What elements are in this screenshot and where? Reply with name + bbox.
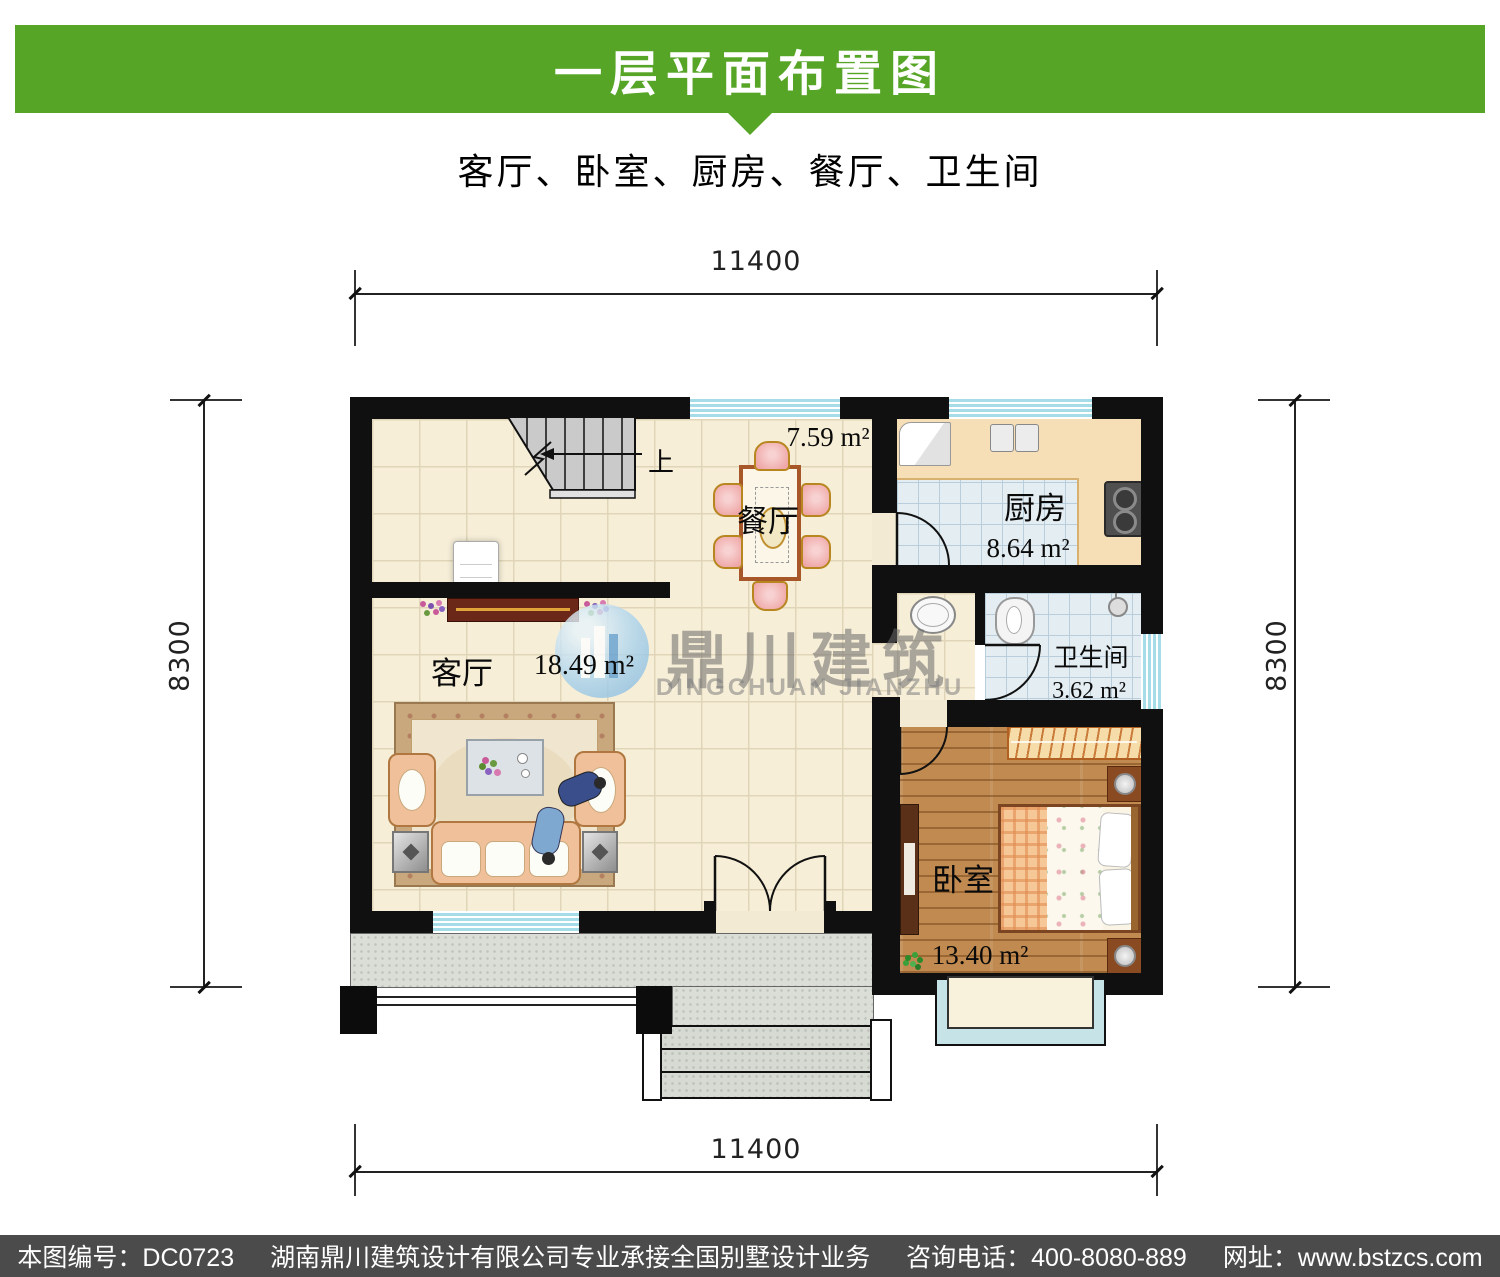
kitchen-window [947, 397, 1094, 419]
dimension-bottom-ext-right [1156, 1124, 1158, 1196]
wall-living-dining-stub [372, 582, 670, 598]
footer-company: 湖南鼎川建筑设计有限公司专业承接全国别墅设计业务 [270, 1238, 870, 1274]
bathroom-name-label: 卫生间 [1046, 638, 1136, 674]
footer-plan-number: 本图编号：DC0723 [17, 1238, 234, 1274]
dining-window [688, 397, 842, 419]
bed-plaid-blanket [1001, 807, 1047, 930]
kitchen-door-threshold [872, 513, 897, 565]
nightstand-top [1107, 766, 1143, 802]
side-table-right [582, 831, 618, 873]
dimension-top-ext-right [1156, 270, 1158, 346]
bathroom-window [1141, 632, 1163, 711]
person-sitting [556, 767, 610, 809]
bed-floral-sheet [1047, 807, 1103, 930]
wall-bedroom-left [872, 697, 900, 995]
dimension-top-label: 11400 [700, 246, 812, 277]
floor-plan: 7.59 m² 餐厅 厨房 8.64 m² 卫生间 3.62 m² 客厅 18.… [350, 397, 1163, 1097]
fridge [899, 422, 951, 466]
living-window [431, 911, 581, 933]
bed-headboard [1131, 807, 1138, 930]
bed [998, 804, 1141, 933]
coffee-table-flowers [482, 757, 489, 764]
kitchen-sink [990, 424, 1040, 452]
nightstand-lamp-2 [1114, 945, 1136, 967]
dimension-bottom-ext-left [354, 1124, 356, 1196]
dimension-bottom-line [355, 1171, 1157, 1173]
burner-2 [1113, 510, 1137, 534]
tv-cabinet [447, 598, 579, 622]
stairs-up-label: 上 [646, 442, 676, 479]
kitchen-area-label: 8.64 m² [978, 533, 1078, 564]
wardrobe [1007, 726, 1145, 760]
coffee-table [466, 739, 544, 796]
coffee-table-cup-1 [517, 753, 528, 764]
title-banner: 一层平面布置图 [15, 25, 1485, 113]
dimension-bottom-label: 11400 [700, 1134, 812, 1165]
dimension-right-label: 8300 [1262, 606, 1293, 706]
banner-pointer-triangle [728, 113, 772, 135]
porch-slab-right [672, 986, 874, 1027]
bedroom-tv [904, 843, 915, 895]
armchair-left [388, 753, 436, 827]
shower-head [1108, 597, 1128, 617]
porch-slab [350, 933, 874, 988]
sink-basin-left [990, 424, 1014, 452]
coffee-table-cup-2 [521, 769, 530, 778]
entry-jamb-left [704, 901, 716, 933]
room-list-subtitle: 客厅、卧室、厨房、餐厅、卫生间 [0, 143, 1500, 195]
person-lying [526, 805, 570, 867]
tv-cabinet-gold-line [456, 608, 570, 611]
bed-pillow-1 [1097, 812, 1135, 868]
dimension-top-line [355, 293, 1157, 295]
bedroom-area-label: 13.40 m² [930, 940, 1030, 971]
dining-name-label: 餐厅 [728, 496, 808, 541]
bedroom-tv-cabinet [900, 804, 919, 935]
water-dispenser [453, 541, 499, 585]
entry-threshold [715, 911, 825, 933]
dimension-top-ext-left [354, 270, 356, 346]
stove [1104, 481, 1144, 537]
steps-stringer-right [870, 1019, 892, 1101]
living-area-label: 18.49 m² [529, 650, 639, 682]
dining-area-label: 7.59 m² [778, 422, 878, 453]
dimension-right-line [1294, 400, 1296, 988]
squat-toilet [995, 597, 1035, 645]
dining-chair-bottom [752, 581, 788, 611]
step-3 [660, 1071, 874, 1099]
wardrobe-rod [1011, 741, 1137, 743]
bedroom-door-threshold [900, 700, 947, 727]
burner-1 [1113, 487, 1137, 511]
plant [905, 955, 911, 961]
bay-window-sill [947, 976, 1094, 1029]
dimension-left-label: 8300 [165, 606, 196, 706]
watermark-company-en: DINGCHUAN JIANZHU [630, 674, 990, 702]
porch-column-left [340, 986, 377, 1034]
footer-phone: 咨询电话：400-8080-889 [906, 1238, 1187, 1274]
kitchen-name-label: 厨房 [995, 483, 1075, 528]
flower-pot-left [420, 601, 426, 607]
floor-plan-page: 一层平面布置图 客厅、卧室、厨房、餐厅、卫生间 11400 11400 8300… [0, 0, 1500, 1277]
page-title: 一层平面布置图 [554, 34, 946, 104]
porch-column-mid [636, 986, 672, 1034]
entry-jamb-right [824, 901, 836, 933]
water-dispenser-panel [460, 564, 492, 578]
wall-left [350, 397, 372, 933]
nightstand-bottom [1107, 938, 1143, 974]
footer-website: 网址：www.bstzcs.com [1223, 1238, 1483, 1274]
footer-bar: 本图编号：DC0723 湖南鼎川建筑设计有限公司专业承接全国别墅设计业务 咨询电… [0, 1235, 1500, 1277]
bathroom-area-label: 3.62 m² [1044, 678, 1134, 705]
squat-toilet-inner [1006, 606, 1022, 634]
dimension-left-line [203, 400, 205, 988]
wall-kitchen-bottom [872, 565, 1163, 593]
side-table-left [392, 831, 429, 873]
sink-basin-right [1015, 424, 1039, 452]
bedroom-name-label: 卧室 [923, 855, 1003, 900]
living-name-label: 客厅 [422, 648, 502, 693]
nightstand-lamp [1114, 773, 1136, 795]
